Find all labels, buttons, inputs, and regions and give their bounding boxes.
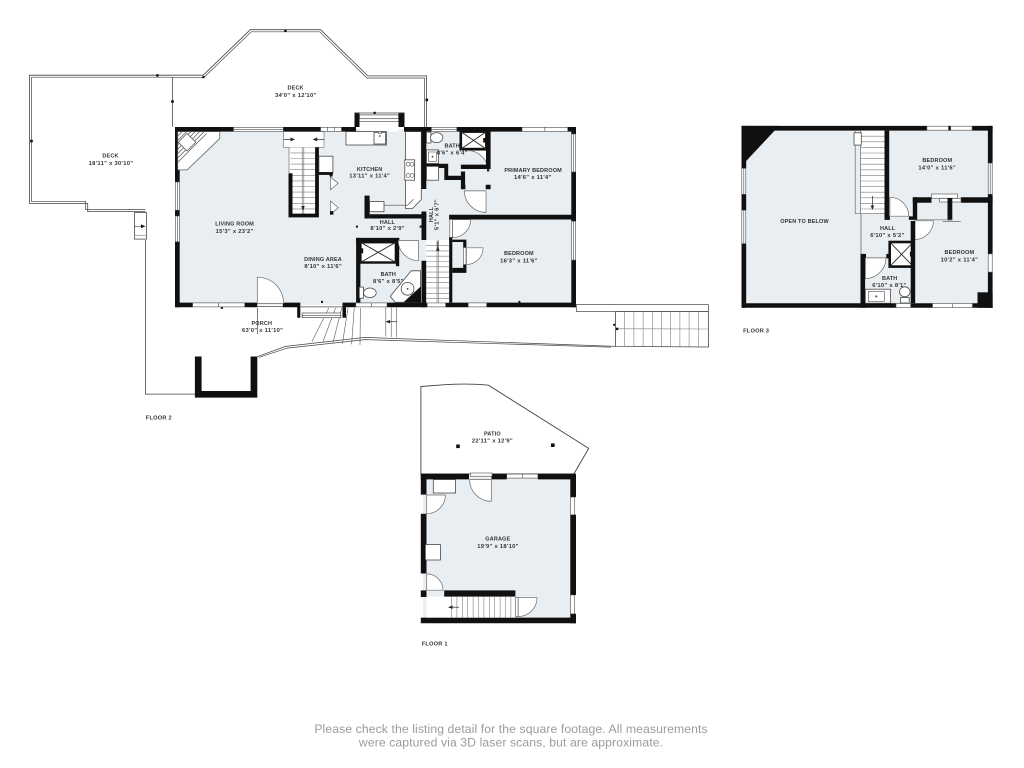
- svg-text:OPEN TO BELOW: OPEN TO BELOW: [780, 219, 829, 225]
- svg-text:8'6" x 8'5": 8'6" x 8'5": [373, 279, 404, 285]
- svg-text:19'9" x 18'10": 19'9" x 18'10": [477, 544, 518, 550]
- svg-text:BATH: BATH: [882, 276, 897, 282]
- svg-text:14'0" x 11'6": 14'0" x 11'6": [918, 165, 956, 171]
- svg-text:16'3" x 11'6": 16'3" x 11'6": [500, 258, 538, 264]
- svg-text:BATH: BATH: [444, 143, 459, 149]
- svg-text:6'10" x 5'2": 6'10" x 5'2": [870, 233, 904, 239]
- svg-text:were captured via 3D laser sca: were captured via 3D laser scans, but ar…: [358, 735, 663, 749]
- svg-text:FLOOR 1: FLOOR 1: [422, 642, 448, 648]
- svg-text:KITCHEN: KITCHEN: [357, 167, 383, 173]
- svg-text:FLOOR 2: FLOOR 2: [146, 415, 172, 421]
- svg-text:DECK: DECK: [102, 154, 118, 160]
- svg-text:LIVING ROOM: LIVING ROOM: [215, 222, 254, 228]
- svg-text:5'1" x 6'7": 5'1" x 6'7": [435, 199, 441, 230]
- svg-text:PRIMARY BEDROOM: PRIMARY BEDROOM: [504, 168, 562, 174]
- svg-text:GARAGE: GARAGE: [485, 537, 510, 543]
- svg-text:10'2" x 11'4": 10'2" x 11'4": [941, 257, 979, 263]
- svg-text:DINING AREA: DINING AREA: [304, 257, 342, 263]
- svg-text:14'6" x 11'4": 14'6" x 11'4": [514, 175, 552, 181]
- svg-text:63'0" x 11'10": 63'0" x 11'10": [242, 328, 283, 334]
- svg-text:8'6" x 6'4": 8'6" x 6'4": [437, 151, 468, 157]
- svg-text:6'10" x 8'1": 6'10" x 8'1": [872, 283, 906, 289]
- svg-text:22'11" x 12'9": 22'11" x 12'9": [472, 439, 513, 445]
- svg-text:DECK: DECK: [288, 86, 304, 92]
- svg-text:PATIO: PATIO: [484, 431, 501, 437]
- svg-text:8'10" x 2'9": 8'10" x 2'9": [370, 226, 404, 232]
- svg-text:BEDROOM: BEDROOM: [504, 251, 534, 257]
- svg-text:BEDROOM: BEDROOM: [945, 250, 975, 256]
- svg-text:Please check the listing detai: Please check the listing detail for the …: [314, 722, 707, 736]
- svg-text:13'11" x 11'4": 13'11" x 11'4": [349, 174, 390, 180]
- svg-text:18'11" x 30'10": 18'11" x 30'10": [89, 161, 134, 167]
- svg-text:BATH: BATH: [381, 272, 396, 278]
- svg-text:15'3" x 23'2": 15'3" x 23'2": [216, 229, 254, 235]
- svg-text:BEDROOM: BEDROOM: [922, 158, 952, 164]
- svg-text:PORCH: PORCH: [251, 321, 272, 327]
- svg-text:HALL: HALL: [880, 226, 896, 232]
- svg-text:34'0" x 12'10": 34'0" x 12'10": [275, 93, 316, 99]
- svg-text:8'10" x 11'6": 8'10" x 11'6": [304, 264, 342, 270]
- svg-text:FLOOR 3: FLOOR 3: [743, 329, 769, 335]
